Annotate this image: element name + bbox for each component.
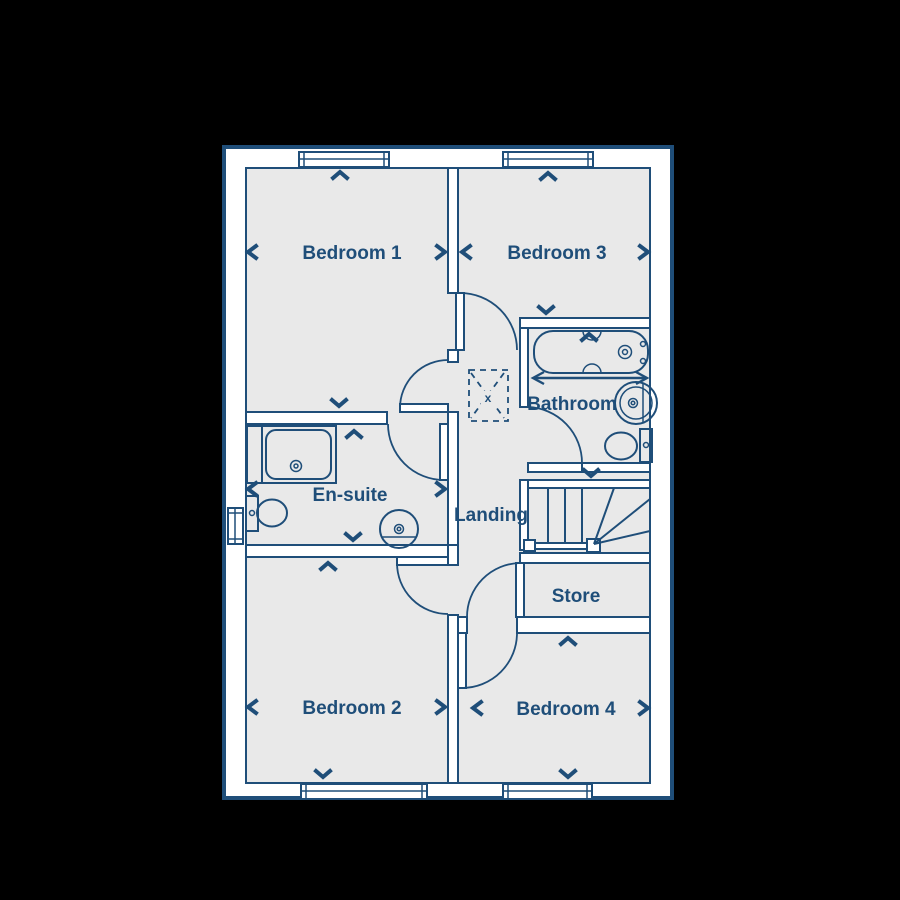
bedroom-2-door-leaf	[397, 557, 448, 565]
wall-jamb-store	[458, 617, 467, 633]
wall-bedroom3-bathroom	[520, 318, 650, 328]
bedroom-2-window	[301, 784, 427, 799]
bedroom-4-window	[503, 784, 592, 799]
store-door-leaf	[516, 563, 524, 617]
wall-store-bedroom4	[517, 617, 650, 633]
stair-newel-left	[524, 540, 535, 551]
stair-top-edge	[520, 480, 650, 488]
wall-bedroom1-bedroom3	[448, 168, 458, 293]
room-label-store: Store	[552, 586, 601, 607]
wall-stub-bedroom2	[448, 545, 458, 565]
wall-bedroom2-bedroom4	[448, 615, 458, 783]
wall-stairs-store	[520, 553, 650, 563]
room-label-landing: Landing	[454, 505, 528, 526]
loft-hatch-mark: x	[485, 391, 492, 405]
room-label-bathroom: Bathroom	[527, 394, 617, 415]
room-label-bedroom-4: Bedroom 4	[516, 699, 616, 720]
wall-bedroom1-ensuite	[246, 412, 387, 424]
bathroom-door-leaf	[528, 463, 582, 472]
bedroom-1-door-leaf	[400, 404, 448, 412]
room-label-bedroom-2: Bedroom 2	[302, 698, 401, 719]
stair-bottom-rail	[530, 543, 592, 549]
bedroom-3-window	[503, 152, 593, 167]
en-suite-door-leaf	[440, 424, 448, 480]
bedroom-3-door-leaf	[456, 293, 464, 350]
room-label-en-suite: En-suite	[313, 485, 388, 506]
wall-ensuite-bedroom2	[246, 545, 448, 557]
room-label-bedroom-1: Bedroom 1	[302, 243, 402, 264]
wall-stub-landing	[448, 350, 458, 362]
bedroom-4-door-leaf	[458, 633, 466, 688]
bedroom-1-window	[299, 152, 389, 167]
en-suite-window	[228, 508, 243, 544]
floor-plan-svg: x Bedroom 1	[0, 0, 900, 900]
room-label-bedroom-3: Bedroom 3	[507, 243, 606, 264]
wall-bathroom-stairs	[582, 463, 650, 472]
